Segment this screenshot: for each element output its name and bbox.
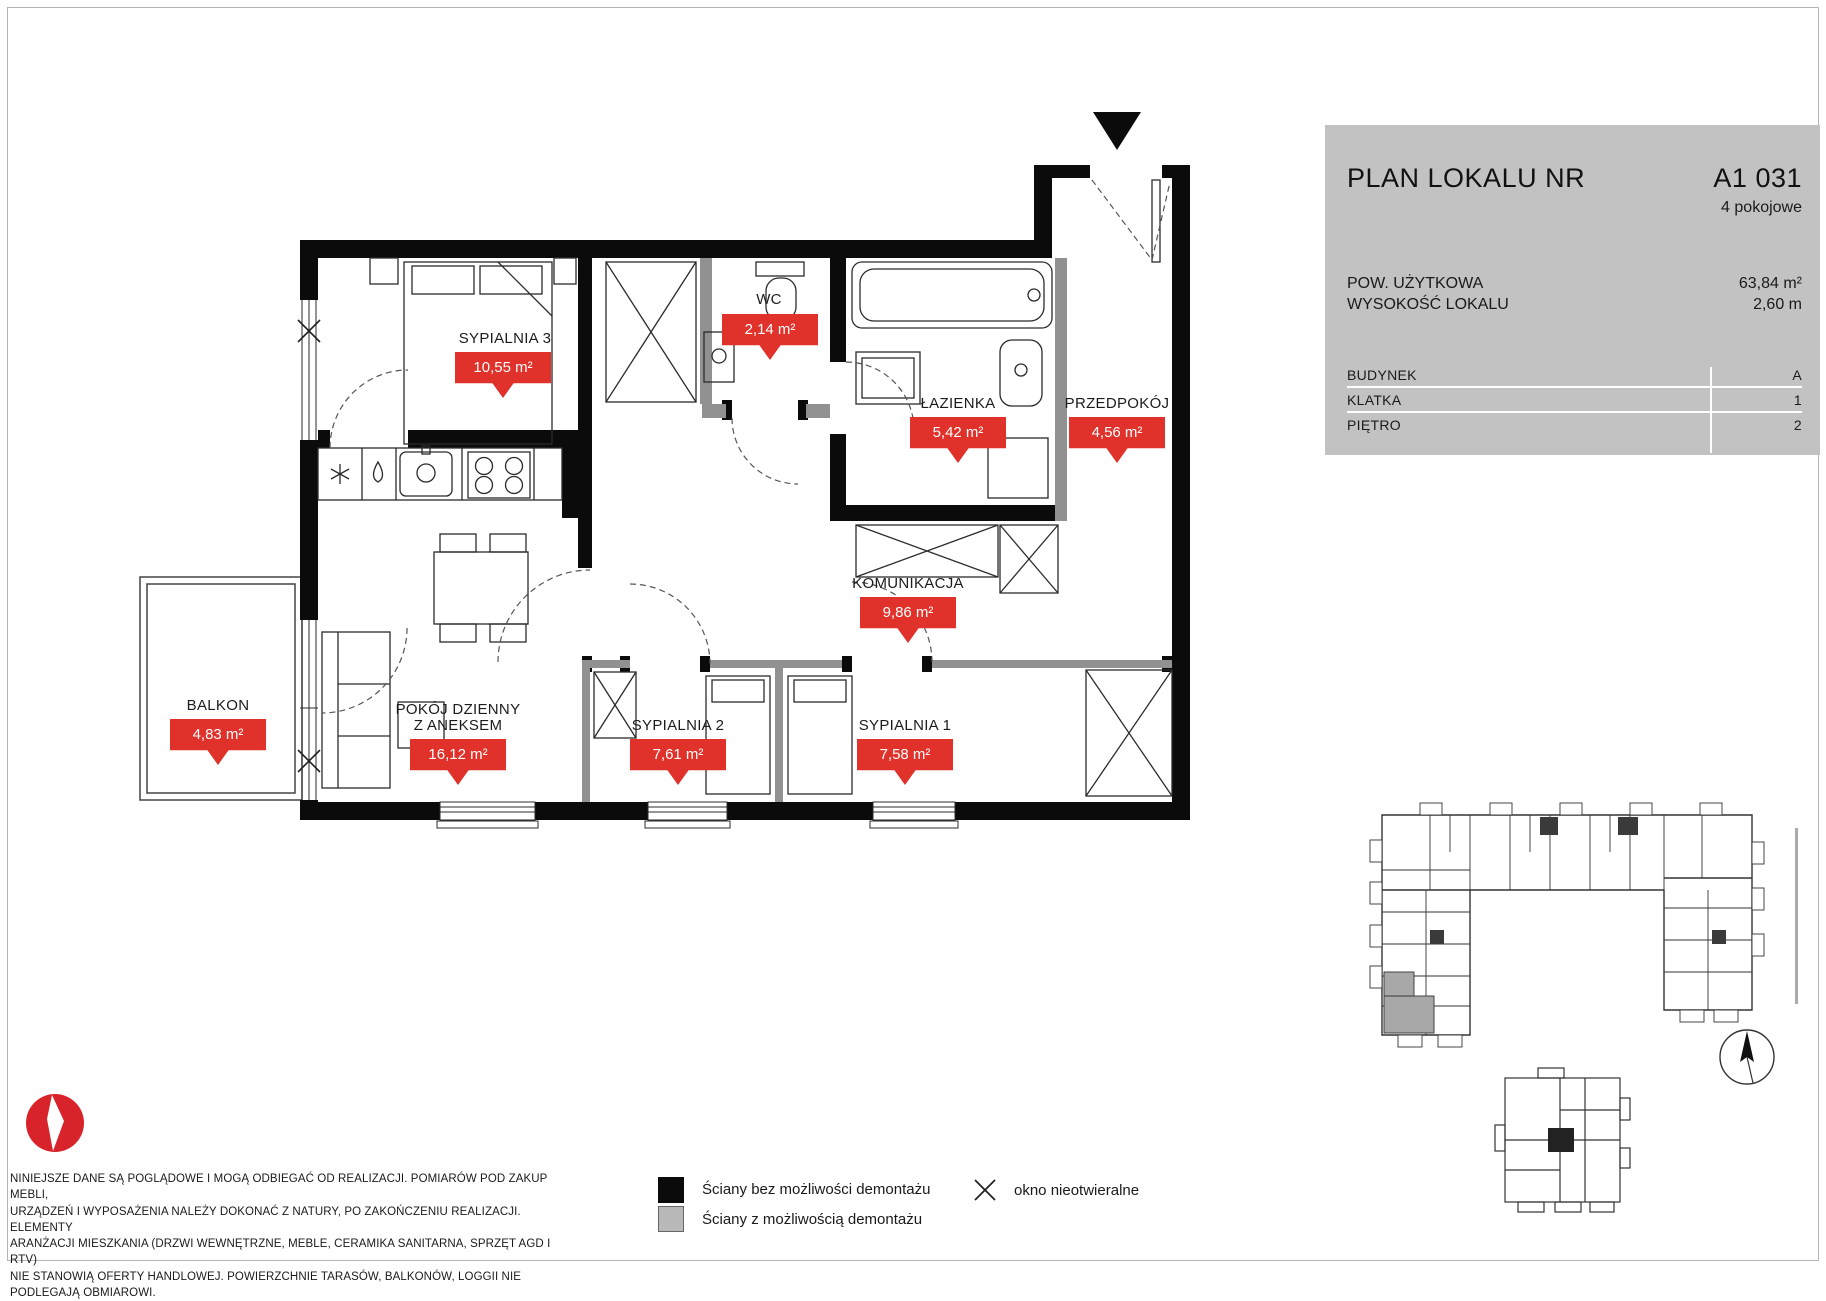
unit-type: 4 pokojowe	[1347, 199, 1802, 217]
developer-logo-icon	[26, 1094, 84, 1152]
spec-label: POW. UŻYTKOWA	[1347, 273, 1483, 294]
storey-core	[1548, 1128, 1574, 1152]
room-label-pokoj-dzienny: POKÓJ DZIENNY Z ANEKSEM	[396, 702, 521, 734]
legend-solid-wall-label: Ściany bez możliwości demontażu	[702, 1181, 930, 1198]
spec-label: WYSOKOŚĆ LOKALU	[1347, 294, 1509, 315]
legend-fixed-window-label: okno nieotwieralne	[1014, 1182, 1139, 1199]
unit-info-panel: PLAN LOKALU NR A1 031 4 pokojowe POW. UŻ…	[1325, 125, 1820, 455]
detail-value: 2	[1794, 417, 1802, 433]
building-overview-cores	[1430, 817, 1726, 944]
room-label-balkon: BALKON	[187, 698, 250, 714]
unit-details-table: BUDYNEK A KLATKA 1 PIĘTRO 2	[1347, 363, 1802, 436]
detail-label: PIĘTRO	[1347, 417, 1401, 433]
legend-solid-wall-swatch	[658, 1177, 684, 1203]
building-overview-units	[1382, 815, 1752, 1035]
unit-specs: POW. UŻYTKOWA 63,84 m² WYSOKOŚĆ LOKALU 2…	[1347, 273, 1802, 315]
room-label-sypialnia1: SYPIALNIA 1	[859, 718, 952, 734]
legend-removable-wall-swatch	[658, 1206, 684, 1232]
room-label-sypialnia3: SYPIALNIA 3	[459, 331, 552, 347]
legend-fixed-window-icon	[972, 1177, 998, 1203]
unit-number: A1 031	[1713, 163, 1802, 194]
compass-icon	[1720, 1030, 1774, 1084]
highlighted-unit	[1384, 996, 1434, 1033]
divider-line	[1795, 828, 1798, 1004]
spec-value: 2,60 m	[1753, 294, 1802, 315]
disclaimer-text: NINIEJSZE DANE SĄ POGLĄDOWE I MOGĄ ODBIE…	[10, 1171, 570, 1301]
detail-value: 1	[1794, 392, 1802, 408]
room-label-lazienka: ŁAZIENKA	[921, 396, 996, 412]
legend-removable-wall-label: Ściany z możliwością demontażu	[702, 1211, 922, 1228]
building-overview	[1382, 815, 1752, 1035]
room-label-wc: WC	[756, 292, 782, 308]
floor-plan-page: { "panel": { "title": "PLAN LOKALU NR", …	[0, 0, 1826, 1268]
detail-label: KLATKA	[1347, 392, 1401, 408]
highlighted-unit-part	[1384, 972, 1414, 996]
detail-value: A	[1792, 367, 1802, 383]
panel-title: PLAN LOKALU NR	[1347, 163, 1585, 194]
details-column-divider	[1710, 367, 1712, 453]
balcony-outline	[140, 577, 302, 800]
room-label-komunikacja: KOMUNIKACJA	[852, 576, 964, 592]
detail-label: BUDYNEK	[1347, 367, 1417, 383]
entrance-arrow-icon	[1093, 112, 1141, 150]
room-label-przedpokoj: PRZEDPOKÓJ	[1065, 396, 1170, 412]
room-label-sypialnia2: SYPIALNIA 2	[632, 718, 725, 734]
spec-value: 63,84 m²	[1739, 273, 1802, 294]
